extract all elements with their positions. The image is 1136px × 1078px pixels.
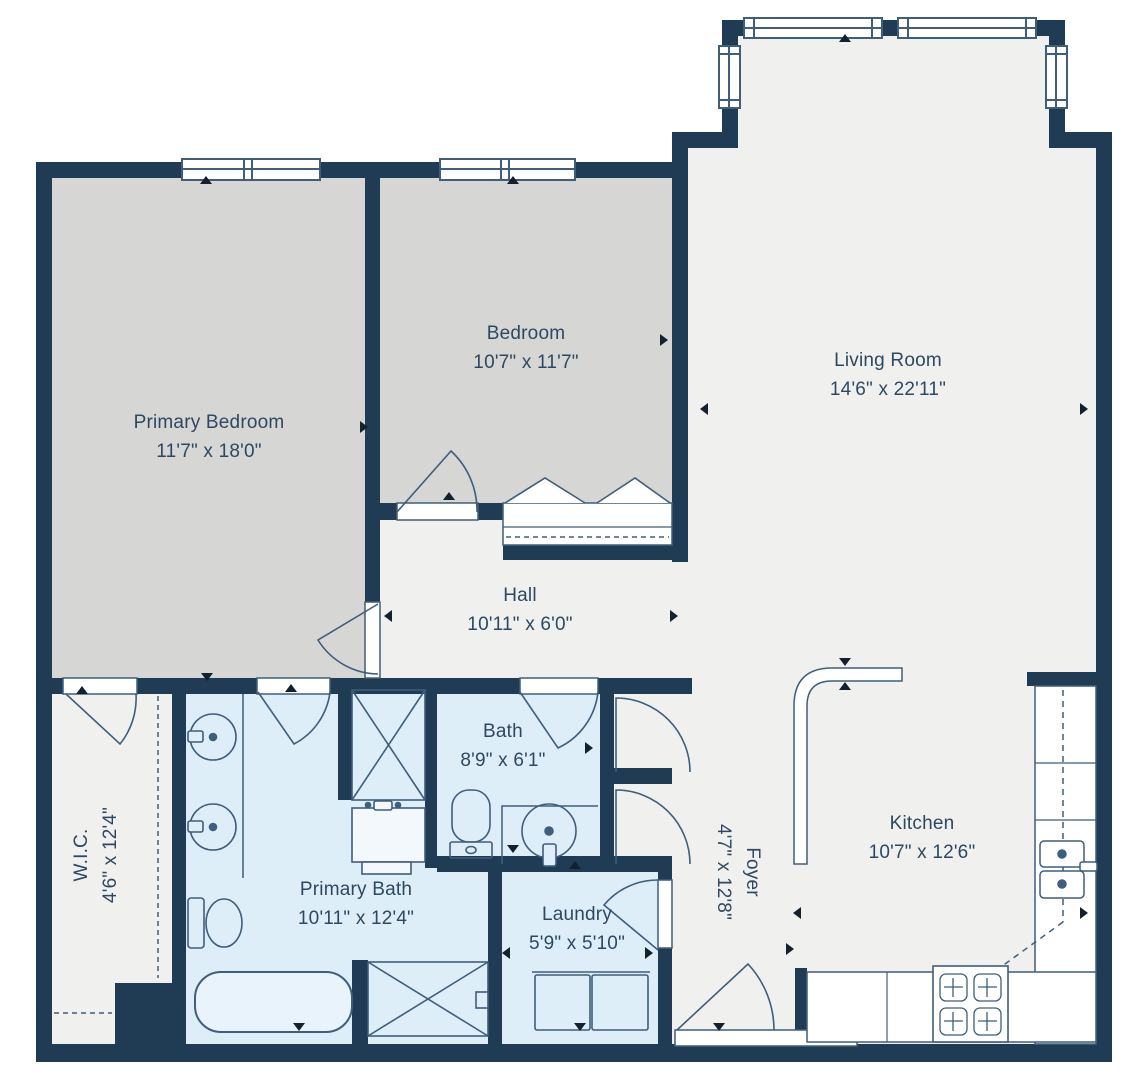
room-dimensions: 10'7" x 11'7": [473, 348, 578, 377]
room-label-kitchen: Kitchen 10'7" x 12'6": [869, 809, 976, 867]
room-name: Primary Bedroom: [134, 408, 285, 437]
room-label-primary-bath: Primary Bath 10'11" x 12'4": [298, 875, 414, 933]
room-name: W.I.C.: [67, 807, 96, 903]
window: [898, 18, 1036, 38]
living-room-bay-floor: [738, 36, 1049, 148]
window: [182, 159, 320, 180]
room-name: Hall: [467, 581, 572, 610]
room-name: Living Room: [830, 346, 946, 375]
room-label-primary-bedroom: Primary Bedroom 11'7" x 18'0": [134, 408, 285, 466]
laundry-door-sill: [658, 880, 672, 948]
room-label-wic: W.I.C. 4'6" x 12'4": [67, 807, 125, 903]
room-label-bedroom: Bedroom 10'7" x 11'7": [473, 319, 578, 377]
room-dimensions: 4'6" x 12'4": [96, 807, 125, 903]
room-dimensions: 10'11" x 12'4": [298, 904, 414, 933]
room-label-living-room: Living Room 14'6" x 22'11": [830, 346, 946, 404]
living-room-floor: [688, 148, 1096, 682]
floor-plan: Primary Bedroom 11'7" x 18'0" Bedroom 10…: [0, 0, 1136, 1078]
window: [719, 46, 740, 108]
room-label-laundry: Laundry 5'9" x 5'10": [529, 900, 625, 958]
room-dimensions: 11'7" x 18'0": [134, 437, 285, 466]
room-name: Bath: [460, 717, 545, 746]
room-label-hall: Hall 10'11" x 6'0": [467, 581, 572, 639]
room-name: Bedroom: [473, 319, 578, 348]
bedroom-door-sill: [397, 503, 478, 520]
window: [1046, 46, 1067, 108]
stove-icon: [933, 966, 1008, 1042]
bathtub-icon: [195, 972, 352, 1032]
wic-door-sill: [63, 678, 137, 694]
room-label-foyer: Foyer 4'7" x 12'8": [709, 824, 767, 920]
room-name: Foyer: [738, 824, 767, 920]
room-dimensions: 5'9" x 5'10": [529, 929, 625, 958]
room-dimensions: 4'7" x 12'8": [709, 824, 738, 920]
room-name: Laundry: [529, 900, 625, 929]
room-name: Primary Bath: [298, 875, 414, 904]
primary-bedroom-door-sill: [365, 602, 380, 678]
shower-valve-icon: [476, 992, 488, 1008]
room-dimensions: 10'11" x 6'0": [467, 610, 572, 639]
window: [744, 18, 882, 38]
room-dimensions: 10'7" x 12'6": [869, 838, 976, 867]
window: [440, 159, 575, 180]
room-name: Kitchen: [869, 809, 976, 838]
room-dimensions: 14'6" x 22'11": [830, 375, 946, 404]
bath-door-sill: [520, 678, 598, 694]
room-dimensions: 8'9" x 6'1": [460, 746, 545, 775]
room-label-bath: Bath 8'9" x 6'1": [460, 717, 545, 775]
